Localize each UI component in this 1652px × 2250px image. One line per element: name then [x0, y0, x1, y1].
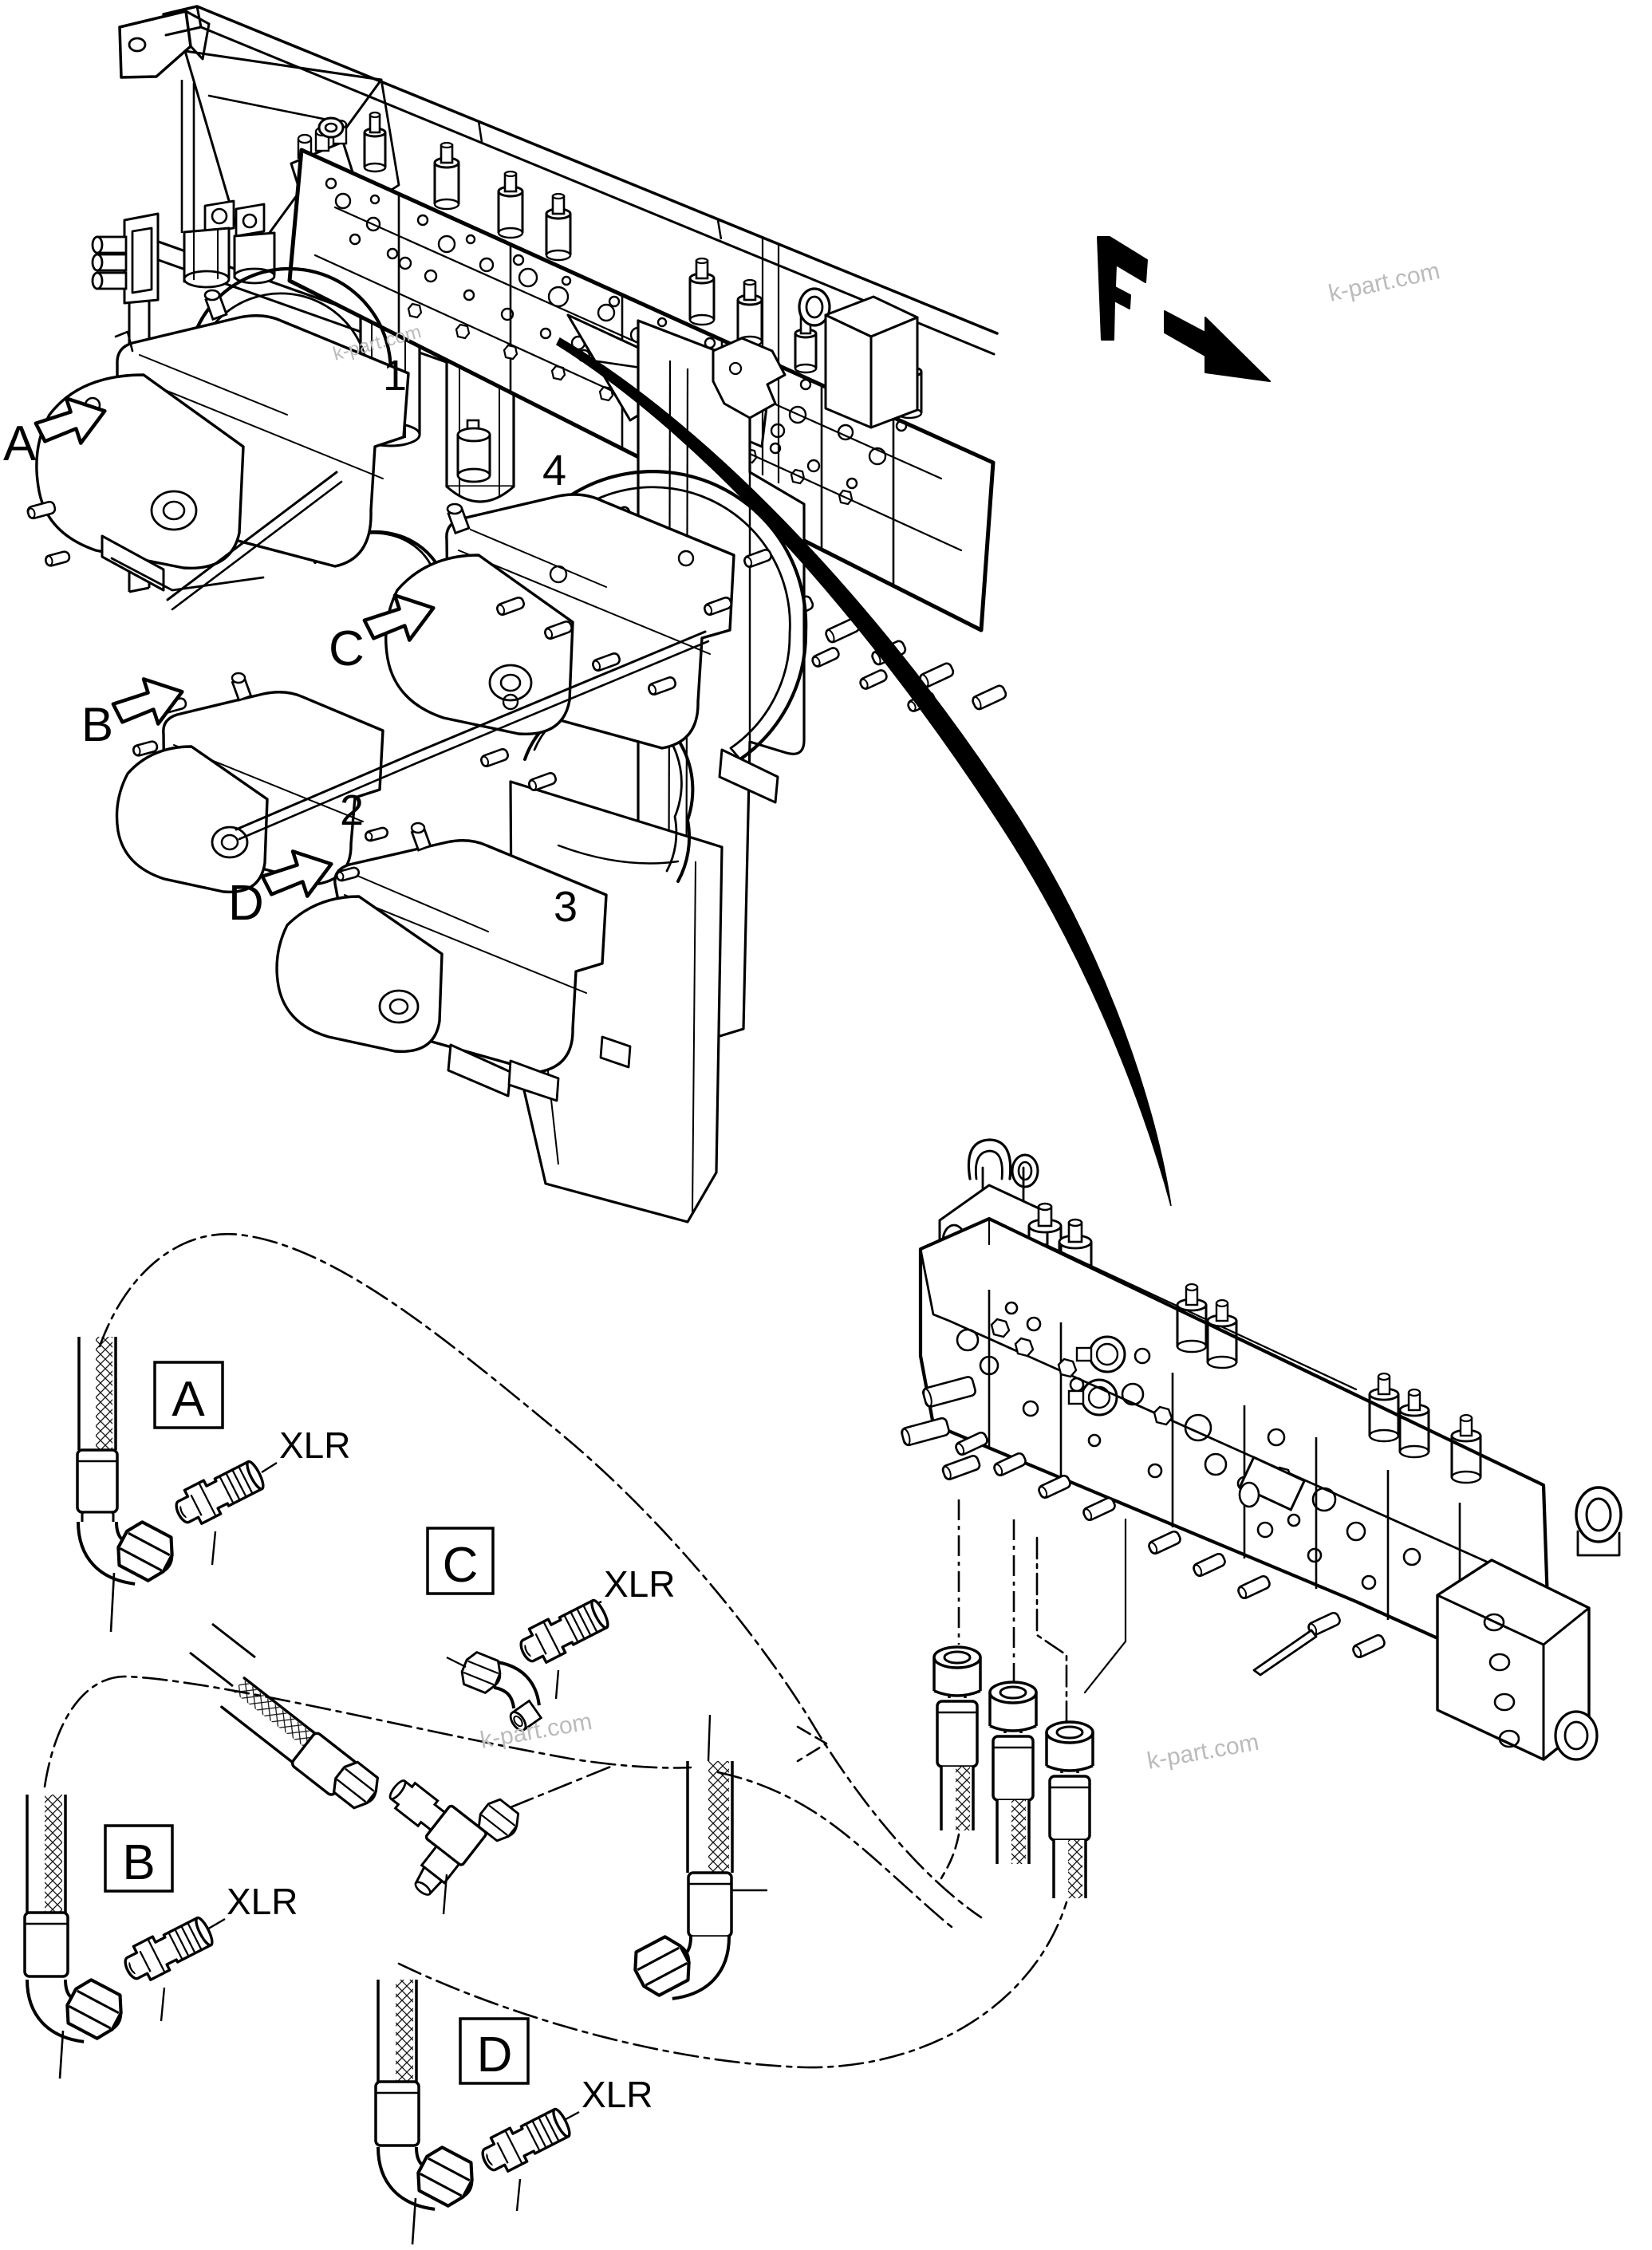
svg-text:B: B [122, 1835, 155, 1890]
svg-text:3: 3 [554, 883, 578, 931]
svg-text:C: C [329, 621, 365, 676]
svg-text:XLR: XLR [279, 1424, 350, 1466]
svg-text:C: C [443, 1538, 479, 1593]
svg-text:XLR: XLR [604, 1563, 675, 1605]
svg-text:B: B [81, 698, 113, 751]
svg-text:A: A [172, 1372, 205, 1427]
svg-text:4: 4 [542, 447, 566, 495]
svg-text:D: D [477, 2027, 513, 2083]
svg-text:XLR: XLR [582, 2074, 653, 2115]
svg-text:1: 1 [383, 352, 407, 400]
svg-text:XLR: XLR [227, 1881, 298, 1922]
svg-text:D: D [228, 876, 264, 931]
svg-text:2: 2 [340, 786, 364, 834]
svg-text:A: A [3, 416, 37, 471]
